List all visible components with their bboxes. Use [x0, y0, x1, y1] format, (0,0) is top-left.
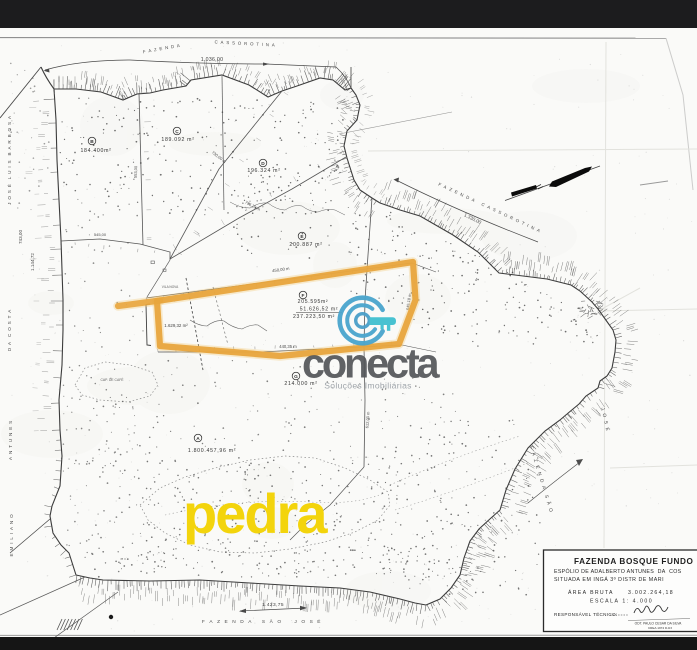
svg-text:1.423,75: 1.423,75 — [262, 602, 284, 608]
svg-text:A N T U N E S: A N T U N E S — [8, 420, 13, 460]
svg-text:184.400m²: 184.400m² — [80, 148, 111, 154]
svg-text:1.800.457,96 m²: 1.800.457,96 m² — [188, 448, 236, 454]
svg-text:553,00: 553,00 — [133, 165, 138, 178]
svg-text:1.036,00: 1.036,00 — [201, 57, 224, 63]
svg-text:ODT. PAULO CESAR DA SILVA: ODT. PAULO CESAR DA SILVA — [635, 622, 683, 626]
svg-text:conecta: conecta — [302, 340, 441, 387]
svg-text:J O S É L U I S B A R B O S: J O S É L U I S B A R B O S A — [6, 115, 12, 205]
svg-text:1.144,72: 1.144,72 — [30, 253, 35, 271]
svg-text:743,00: 743,00 — [18, 230, 23, 244]
svg-text:D A C O S T A: D A C O S T A — [7, 309, 12, 351]
svg-text:196.324 m²: 196.324 m² — [247, 168, 280, 174]
svg-text:CAP. DE CAFÉ: CAP. DE CAFÉ — [100, 377, 124, 382]
svg-text:189.092 m²: 189.092 m² — [161, 137, 194, 143]
svg-text:205.595m²: 205.595m² — [298, 299, 329, 305]
svg-text:FAZENDA BOSQUE FUNDO: FAZENDA BOSQUE FUNDO — [574, 557, 694, 566]
svg-text:440,35 m: 440,35 m — [279, 344, 297, 349]
svg-text:F: F — [302, 293, 305, 299]
svg-text:A: A — [196, 436, 200, 442]
svg-text:RESPONSÁVEL TÉCNICO:: RESPONSÁVEL TÉCNICO: — [554, 611, 617, 617]
svg-text:1.629,32 m²: 1.629,32 m² — [164, 323, 188, 328]
svg-text:ESPÓLIO DE ADALBERTO ANTUNES: ESPÓLIO DE ADALBERTO ANTUNES DA COS — [554, 568, 682, 575]
svg-text:C: C — [175, 129, 179, 135]
svg-text:E M I L I A N O: E M I L I A N O — [9, 514, 14, 557]
svg-text:CREA 1974 D-RJ: CREA 1974 D-RJ — [648, 626, 673, 630]
svg-text:G: G — [294, 374, 298, 380]
svg-text:ÁREA BRUTA: ÁREA BRUTA — [568, 589, 614, 596]
svg-text:545,00: 545,00 — [94, 232, 107, 237]
svg-text:VILA NOVA: VILA NOVA — [162, 285, 179, 289]
svg-text:ESCALA 1: 4.000: ESCALA 1: 4.000 — [590, 599, 653, 605]
svg-text:200.887 m²: 200.887 m² — [289, 242, 322, 248]
svg-text:pedra: pedra — [183, 482, 328, 545]
svg-text:F A Z E N D A S Ã O J O S: F A Z E N D A S Ã O J O S É — [202, 618, 322, 625]
svg-text:51.626,52 m²: 51.626,52 m² — [300, 307, 338, 313]
svg-text:B: B — [90, 139, 94, 145]
svg-text:Soluções Imobiliárias: Soluções Imobiliárias — [324, 381, 412, 391]
svg-text:SITUADA EM INGÁ 3º DISTR DE MA: SITUADA EM INGÁ 3º DISTR DE MARI — [554, 576, 664, 583]
svg-text:D: D — [261, 161, 265, 167]
svg-text:237.223,50 m²: 237.223,50 m² — [293, 314, 335, 320]
svg-text:3.002.264,18: 3.002.264,18 — [628, 590, 674, 596]
